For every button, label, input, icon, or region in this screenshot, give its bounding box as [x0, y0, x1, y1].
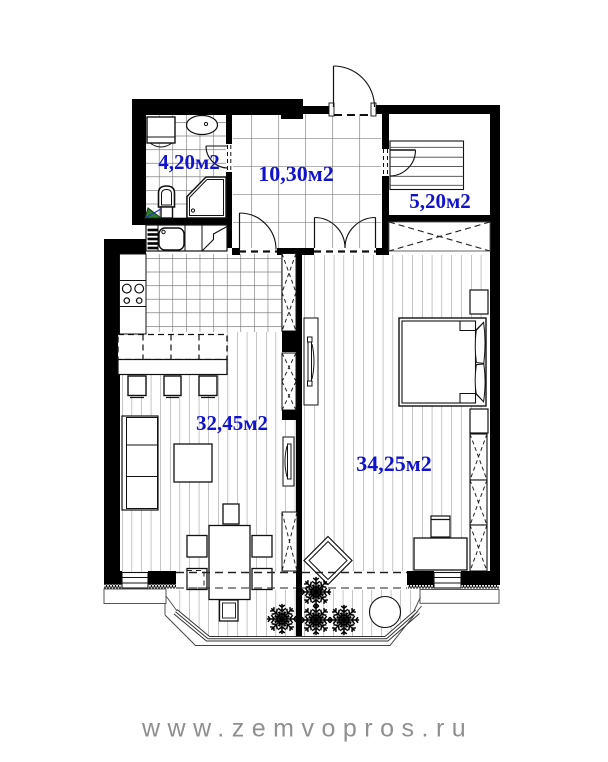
- svg-text:5,20м2: 5,20м2: [409, 189, 471, 213]
- svg-text:www.zemvopros.ru: www.zemvopros.ru: [141, 715, 473, 743]
- svg-text:34,25м2: 34,25м2: [356, 451, 432, 476]
- svg-text:32,45м2: 32,45м2: [196, 411, 268, 435]
- svg-text:4,20м2: 4,20м2: [158, 150, 220, 174]
- svg-text:10,30м2: 10,30м2: [258, 161, 334, 186]
